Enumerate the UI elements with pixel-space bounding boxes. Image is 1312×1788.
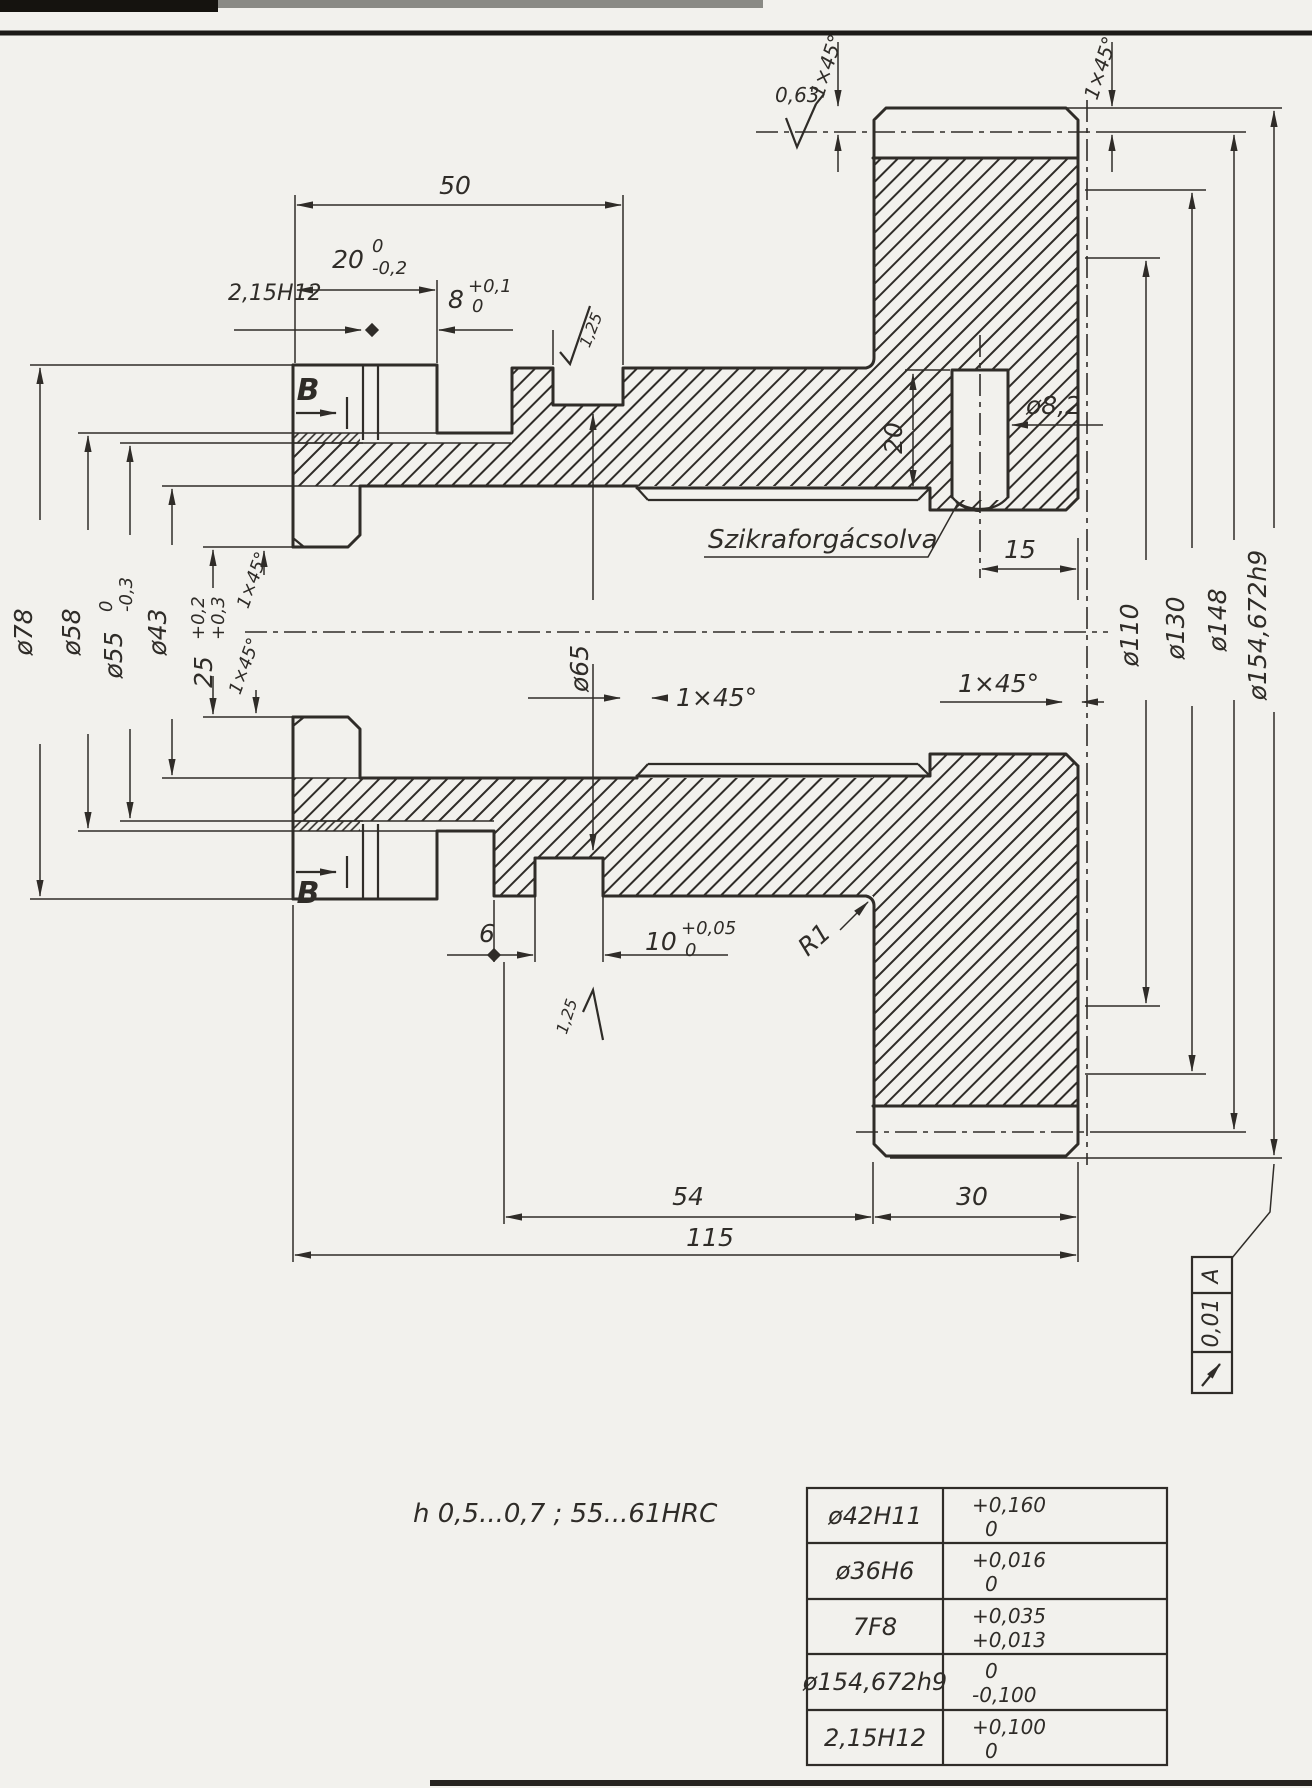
tolerance-value: 0,01 bbox=[1199, 1299, 1224, 1348]
surface-note: Szikraforgácsolva bbox=[708, 525, 938, 555]
finish-125-bottom: 1,25 bbox=[552, 996, 581, 1036]
fillet-callout: R1 bbox=[792, 902, 868, 962]
table-row: ø42H11 +0,160 0 bbox=[827, 1493, 1046, 1541]
dim-25: 25 bbox=[189, 656, 218, 688]
runout-symbol-icon bbox=[1202, 1364, 1220, 1386]
table-upper-0: +0,160 bbox=[972, 1493, 1046, 1517]
table-feature-3: ø154,672h9 bbox=[802, 1668, 947, 1696]
table-row: ø154,672h9 0 -0,100 bbox=[802, 1659, 1037, 1707]
section-label-bottom: B bbox=[297, 876, 320, 911]
rim-top-hatch bbox=[873, 158, 1078, 510]
table-lower-0: 0 bbox=[985, 1517, 998, 1541]
engineering-drawing-page: ø78 ø58 ø55 0 -0,3 ø43 25 +0,2 +0,3 1×45… bbox=[0, 0, 1312, 1788]
dim-dia148: ø148 bbox=[1203, 588, 1232, 652]
groove-seat-bottom-hatch bbox=[293, 821, 360, 831]
dim-dia58: ø58 bbox=[57, 608, 86, 656]
table-row: 7F8 +0,035 +0,013 bbox=[853, 1604, 1046, 1652]
dim-dia110: ø110 bbox=[1115, 603, 1144, 667]
dim-dia154: ø154,672h9 bbox=[1243, 550, 1272, 701]
top-dimensions: 50 20 0 -0,2 2,15H12 8 +0,1 0 1,25 bbox=[228, 171, 623, 365]
chamfer-bore-mid: 1×45° bbox=[676, 683, 757, 712]
groove-seat-top-hatch bbox=[293, 433, 360, 443]
table-upper-3: 0 bbox=[985, 1659, 998, 1683]
table-feature-2: 7F8 bbox=[853, 1613, 897, 1641]
table-lower-3: -0,100 bbox=[972, 1683, 1036, 1707]
chamfer-bore-lower: 1×45° bbox=[225, 635, 265, 697]
dim-dia55-lower-tol: -0,3 bbox=[116, 577, 137, 612]
table-row: 2,15H12 +0,100 0 bbox=[824, 1715, 1046, 1763]
gear-section-drawing: ø78 ø58 ø55 0 -0,3 ø43 25 +0,2 +0,3 1×45… bbox=[0, 0, 1312, 1788]
table-lower-2: +0,013 bbox=[972, 1628, 1046, 1652]
table-lower-1: 0 bbox=[985, 1572, 998, 1596]
table-feature-1: ø36H6 bbox=[835, 1557, 915, 1585]
dim-20-upper-tol: 0 bbox=[372, 236, 383, 257]
dim-10: 10 bbox=[645, 927, 677, 956]
web-bottom-hatch bbox=[494, 778, 873, 896]
dim-hole-dia: ø8,2 bbox=[1025, 391, 1081, 420]
dim-30: 30 bbox=[956, 1182, 988, 1211]
feature-control-frame: A 0,01 bbox=[1192, 1164, 1274, 1393]
dim-8-lower-tol: 0 bbox=[472, 296, 483, 317]
hardness-note: h 0,5...0,7 ; 55...61HRC bbox=[413, 1499, 718, 1529]
table-feature-4: 2,15H12 bbox=[824, 1724, 926, 1752]
dim-20-lower-tol: -0,2 bbox=[372, 258, 407, 279]
table-row: ø36H6 +0,016 0 bbox=[835, 1548, 1046, 1596]
finish-125-top: 1,25 bbox=[575, 310, 606, 350]
chamfer-bore-upper: 1×45° bbox=[233, 549, 273, 611]
dim-groove: 2,15H12 bbox=[228, 281, 322, 306]
dim-dia130: ø130 bbox=[1161, 596, 1190, 660]
teeth-chamfer-callouts: 0,63 1×45° 1×45° bbox=[775, 31, 1122, 172]
table-feature-0: ø42H11 bbox=[827, 1502, 922, 1530]
table-lower-4: 0 bbox=[985, 1739, 998, 1763]
dim-25-lower-tol: +0,3 bbox=[208, 596, 229, 640]
table-upper-4: +0,100 bbox=[972, 1715, 1046, 1739]
surface-finish-slot-top: 1,25 bbox=[560, 306, 606, 364]
table-upper-2: +0,035 bbox=[972, 1604, 1046, 1628]
dim-dia43: ø43 bbox=[143, 608, 172, 656]
tolerance-table: ø42H11 +0,160 0 ø36H6 +0,016 0 7F8 +0,03… bbox=[802, 1488, 1167, 1765]
surface-note-group: Szikraforgácsolva bbox=[704, 503, 958, 557]
dim-8-upper-tol: +0,1 bbox=[468, 276, 512, 297]
dim-54: 54 bbox=[672, 1182, 704, 1211]
hub-top-band-hatch bbox=[293, 443, 512, 486]
dim-15: 15 bbox=[1004, 535, 1036, 564]
dim-10-lower-tol: 0 bbox=[685, 940, 696, 961]
dim-20: 20 bbox=[332, 245, 364, 274]
dim-25-upper-tol: +0,2 bbox=[188, 596, 209, 640]
dim-dia78: ø78 bbox=[9, 608, 38, 656]
chamfer-bore-right: 1×45° bbox=[958, 669, 1039, 698]
dim-6: 6 bbox=[479, 919, 495, 948]
dim-dia65: ø65 bbox=[565, 645, 594, 693]
datum-letter: A bbox=[1199, 1268, 1224, 1285]
dim-r1: R1 bbox=[792, 918, 836, 962]
web-top-hatch bbox=[512, 368, 873, 486]
section-label-top: B bbox=[297, 373, 320, 408]
dim-dia55: ø55 bbox=[99, 631, 128, 679]
dim-hole-depth: 20 bbox=[879, 422, 908, 454]
chamfer-teeth-top-right: 1×45° bbox=[1079, 33, 1122, 102]
hub-bottom-band-hatch bbox=[293, 778, 494, 821]
dim-10-upper-tol: +0,05 bbox=[681, 918, 736, 939]
dim-dia55-upper-tol: 0 bbox=[96, 601, 117, 612]
dim-8: 8 bbox=[448, 285, 464, 314]
dim-50: 50 bbox=[439, 171, 471, 200]
table-upper-1: +0,016 bbox=[972, 1548, 1046, 1572]
surface-finish-slot-bottom: 1,25 bbox=[552, 990, 603, 1040]
dim-115: 115 bbox=[686, 1223, 734, 1252]
chamfer-teeth-top-left: 1×45° bbox=[805, 31, 848, 100]
rim-bottom-hatch bbox=[873, 754, 1078, 1106]
